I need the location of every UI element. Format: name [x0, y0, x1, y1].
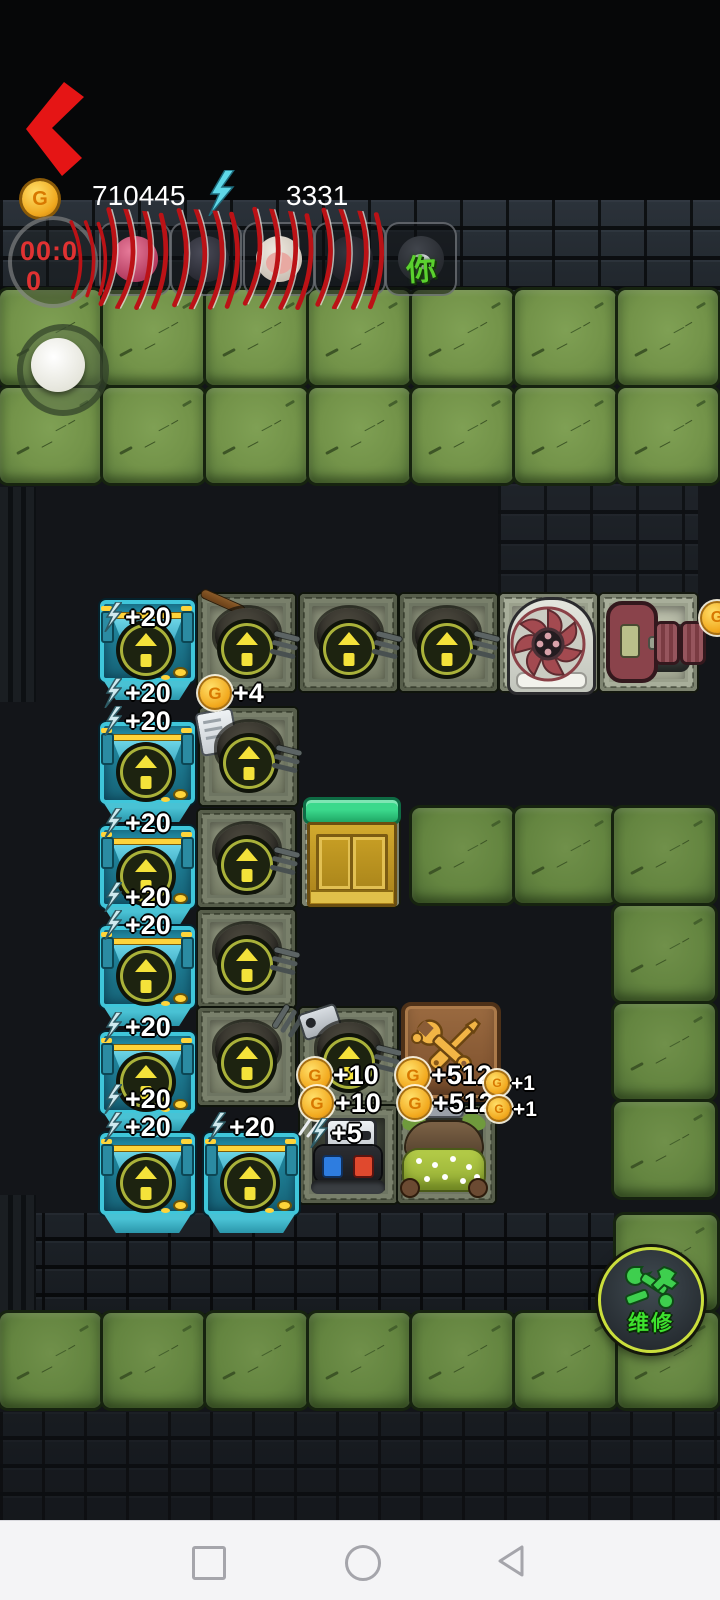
grass-tile	[515, 808, 616, 903]
reward-amount: +1	[511, 1073, 535, 1094]
upgrade-arrow-icon	[120, 746, 172, 798]
stone-wall-patch	[498, 484, 698, 596]
reward-label: +20	[104, 1112, 171, 1142]
energy-bolt-icon	[104, 1012, 122, 1042]
reward-amount: +20	[125, 1014, 171, 1041]
repair-button-label: 维修	[628, 1307, 674, 1337]
character-slot-5[interactable]: 你	[385, 222, 457, 296]
roller-icon	[654, 621, 680, 665]
energy-bolt-icon	[104, 678, 122, 708]
robot-treads	[311, 1180, 385, 1194]
reward-label: G+10	[302, 1088, 381, 1118]
energy-generator[interactable]	[204, 1133, 299, 1233]
arrow-turret[interactable]	[212, 824, 284, 894]
back-button[interactable]	[22, 82, 86, 176]
energy-bolt-icon	[310, 1118, 328, 1148]
reward-label: +20	[104, 602, 171, 632]
fan-machine[interactable]	[500, 594, 597, 693]
grass-tile	[103, 388, 204, 483]
grass-tile	[412, 1313, 513, 1408]
gold-door[interactable]	[303, 797, 401, 907]
grass-tile	[515, 290, 616, 385]
energy-bolt-icon	[104, 1084, 122, 1114]
character-portrait	[112, 236, 158, 282]
game-screen: G	[0, 0, 720, 1600]
arrow-turret[interactable]	[314, 608, 386, 678]
grass-tile	[0, 1313, 101, 1408]
arrow-turret[interactable]	[412, 608, 484, 678]
timer-slot[interactable]: 00:0 0	[8, 216, 98, 308]
reward-amount: +512	[431, 1062, 492, 1089]
grass-tile	[515, 1313, 616, 1408]
reward-amount: +4	[233, 680, 264, 707]
energy-generator[interactable]	[100, 926, 195, 1026]
reward-amount: +10	[335, 1090, 381, 1117]
upgrade-arrow-icon	[221, 623, 273, 675]
reward-label: G+512	[400, 1088, 494, 1118]
stone-wall-band-lower	[0, 1213, 614, 1313]
door-body	[307, 822, 397, 907]
roller-icon	[680, 621, 706, 665]
reward-amount: +20	[125, 604, 171, 631]
repair-tools-icon	[620, 1263, 682, 1313]
door-health-bar	[303, 797, 401, 825]
reward-amount: +20	[125, 1114, 171, 1141]
grass-tile	[103, 1313, 204, 1408]
coin-icon: G	[398, 1060, 428, 1090]
energy-bolt-icon	[104, 706, 122, 736]
upgrade-arrow-icon	[224, 1157, 276, 1209]
reward-label: G+4	[200, 678, 264, 708]
grass-tile	[206, 1313, 307, 1408]
character-portrait	[183, 236, 229, 282]
energy-amount: 3331	[286, 180, 348, 212]
upgrade-arrow-icon	[120, 1157, 172, 1209]
upgrade-arrow-icon	[221, 839, 273, 891]
reward-label: G+1	[488, 1098, 537, 1120]
grass-tile	[515, 388, 616, 483]
energy-bolt-icon	[104, 1112, 122, 1142]
character-slot-4[interactable]	[314, 222, 386, 296]
grass-tile	[206, 290, 307, 385]
grass-tile	[412, 808, 513, 903]
grass-tile	[614, 1004, 715, 1099]
reward-label: +20	[104, 706, 171, 736]
reward-label: +20	[104, 1012, 171, 1042]
upgrade-arrow-icon	[221, 1037, 273, 1089]
grass-tile	[614, 906, 715, 1001]
grass-tile	[618, 388, 718, 483]
grass-tile	[309, 388, 410, 483]
grass-tile	[614, 808, 715, 903]
reward-label: +20	[208, 1112, 275, 1142]
reward-label: +20	[104, 678, 171, 708]
grass-tile	[103, 290, 204, 385]
reward-label: +5	[310, 1118, 362, 1148]
grass-tile	[309, 1313, 410, 1408]
reward-label: +20	[104, 1084, 171, 1114]
coin-icon: G	[400, 1088, 430, 1118]
energy-bolt-icon	[104, 910, 122, 940]
coin-icon: G	[200, 678, 230, 708]
reward-amount: +20	[125, 708, 171, 735]
grass-tile	[412, 290, 513, 385]
upgrade-arrow-icon	[323, 623, 375, 675]
arrow-turret[interactable]	[212, 924, 284, 994]
energy-bolt-icon	[208, 1112, 226, 1142]
slot-tag-text: 你	[405, 244, 438, 290]
timer-value: 00:0	[20, 236, 78, 267]
grass-tile	[614, 1102, 715, 1197]
character-slot-1[interactable]	[99, 222, 171, 296]
energy-generator[interactable]	[100, 722, 195, 822]
home-button[interactable]	[345, 1545, 381, 1581]
reward-amount: +20	[229, 1114, 275, 1141]
wood-post-left	[0, 487, 36, 702]
reward-label: G+512	[398, 1060, 492, 1090]
reward-label: G+1	[486, 1072, 535, 1094]
grass-tile	[206, 388, 307, 483]
upgrade-arrow-icon	[421, 623, 473, 675]
green-pod-machine[interactable]	[398, 1108, 490, 1200]
reward-amount: +20	[125, 810, 171, 837]
reward-amount: +5	[331, 1120, 362, 1147]
energy-icon	[206, 170, 236, 216]
upgrade-arrow-icon	[221, 939, 273, 991]
fan-blades-icon	[505, 601, 591, 687]
stone-path-bottom	[0, 1412, 720, 1520]
energy-generator[interactable]	[100, 1133, 195, 1233]
robot-body	[315, 1146, 381, 1182]
upgrade-arrow-icon	[223, 737, 275, 789]
character-portrait	[327, 236, 373, 282]
arrow-turret[interactable]	[214, 722, 286, 792]
coin-icon: G	[300, 1060, 330, 1090]
coin-icon: G	[488, 1098, 510, 1120]
reward-label: +20	[104, 910, 171, 940]
reward-amount: +20	[125, 884, 171, 911]
reward-amount: +20	[125, 680, 171, 707]
back-nav-button[interactable]	[494, 1543, 530, 1579]
arrow-turret[interactable]	[212, 1022, 284, 1092]
grass-tile	[412, 388, 513, 483]
energy-bolt-icon	[104, 882, 122, 912]
upgrade-arrow-icon	[120, 950, 172, 1002]
arrow-turret[interactable]	[212, 608, 284, 678]
character-slot-3[interactable]	[243, 222, 315, 296]
reward-amount: +512	[433, 1090, 494, 1117]
reward-amount: +20	[125, 912, 171, 939]
joystick-knob[interactable]	[31, 338, 85, 392]
character-slot-2[interactable]	[170, 222, 242, 296]
repair-button[interactable]: 维修	[598, 1247, 704, 1353]
coin-icon: G	[486, 1072, 508, 1094]
reward-label: +20	[104, 882, 171, 912]
reward-amount: +10	[333, 1062, 379, 1089]
wood-post-left-lower	[0, 1195, 36, 1313]
energy-bolt-icon	[104, 602, 122, 632]
character-portrait	[256, 236, 302, 282]
grass-tile	[618, 290, 718, 385]
recent-apps-button[interactable]	[192, 1546, 226, 1580]
coin-icon: G	[22, 181, 58, 217]
reward-amount: +20	[125, 1086, 171, 1113]
energy-bolt-icon	[104, 808, 122, 838]
reward-label: G+10	[300, 1060, 379, 1090]
coin-icon: G	[302, 1088, 332, 1118]
reward-amount: +1	[513, 1099, 537, 1120]
reward-label: +20	[104, 808, 171, 838]
grass-tile	[309, 290, 410, 385]
coin-amount: 710445	[92, 180, 185, 212]
